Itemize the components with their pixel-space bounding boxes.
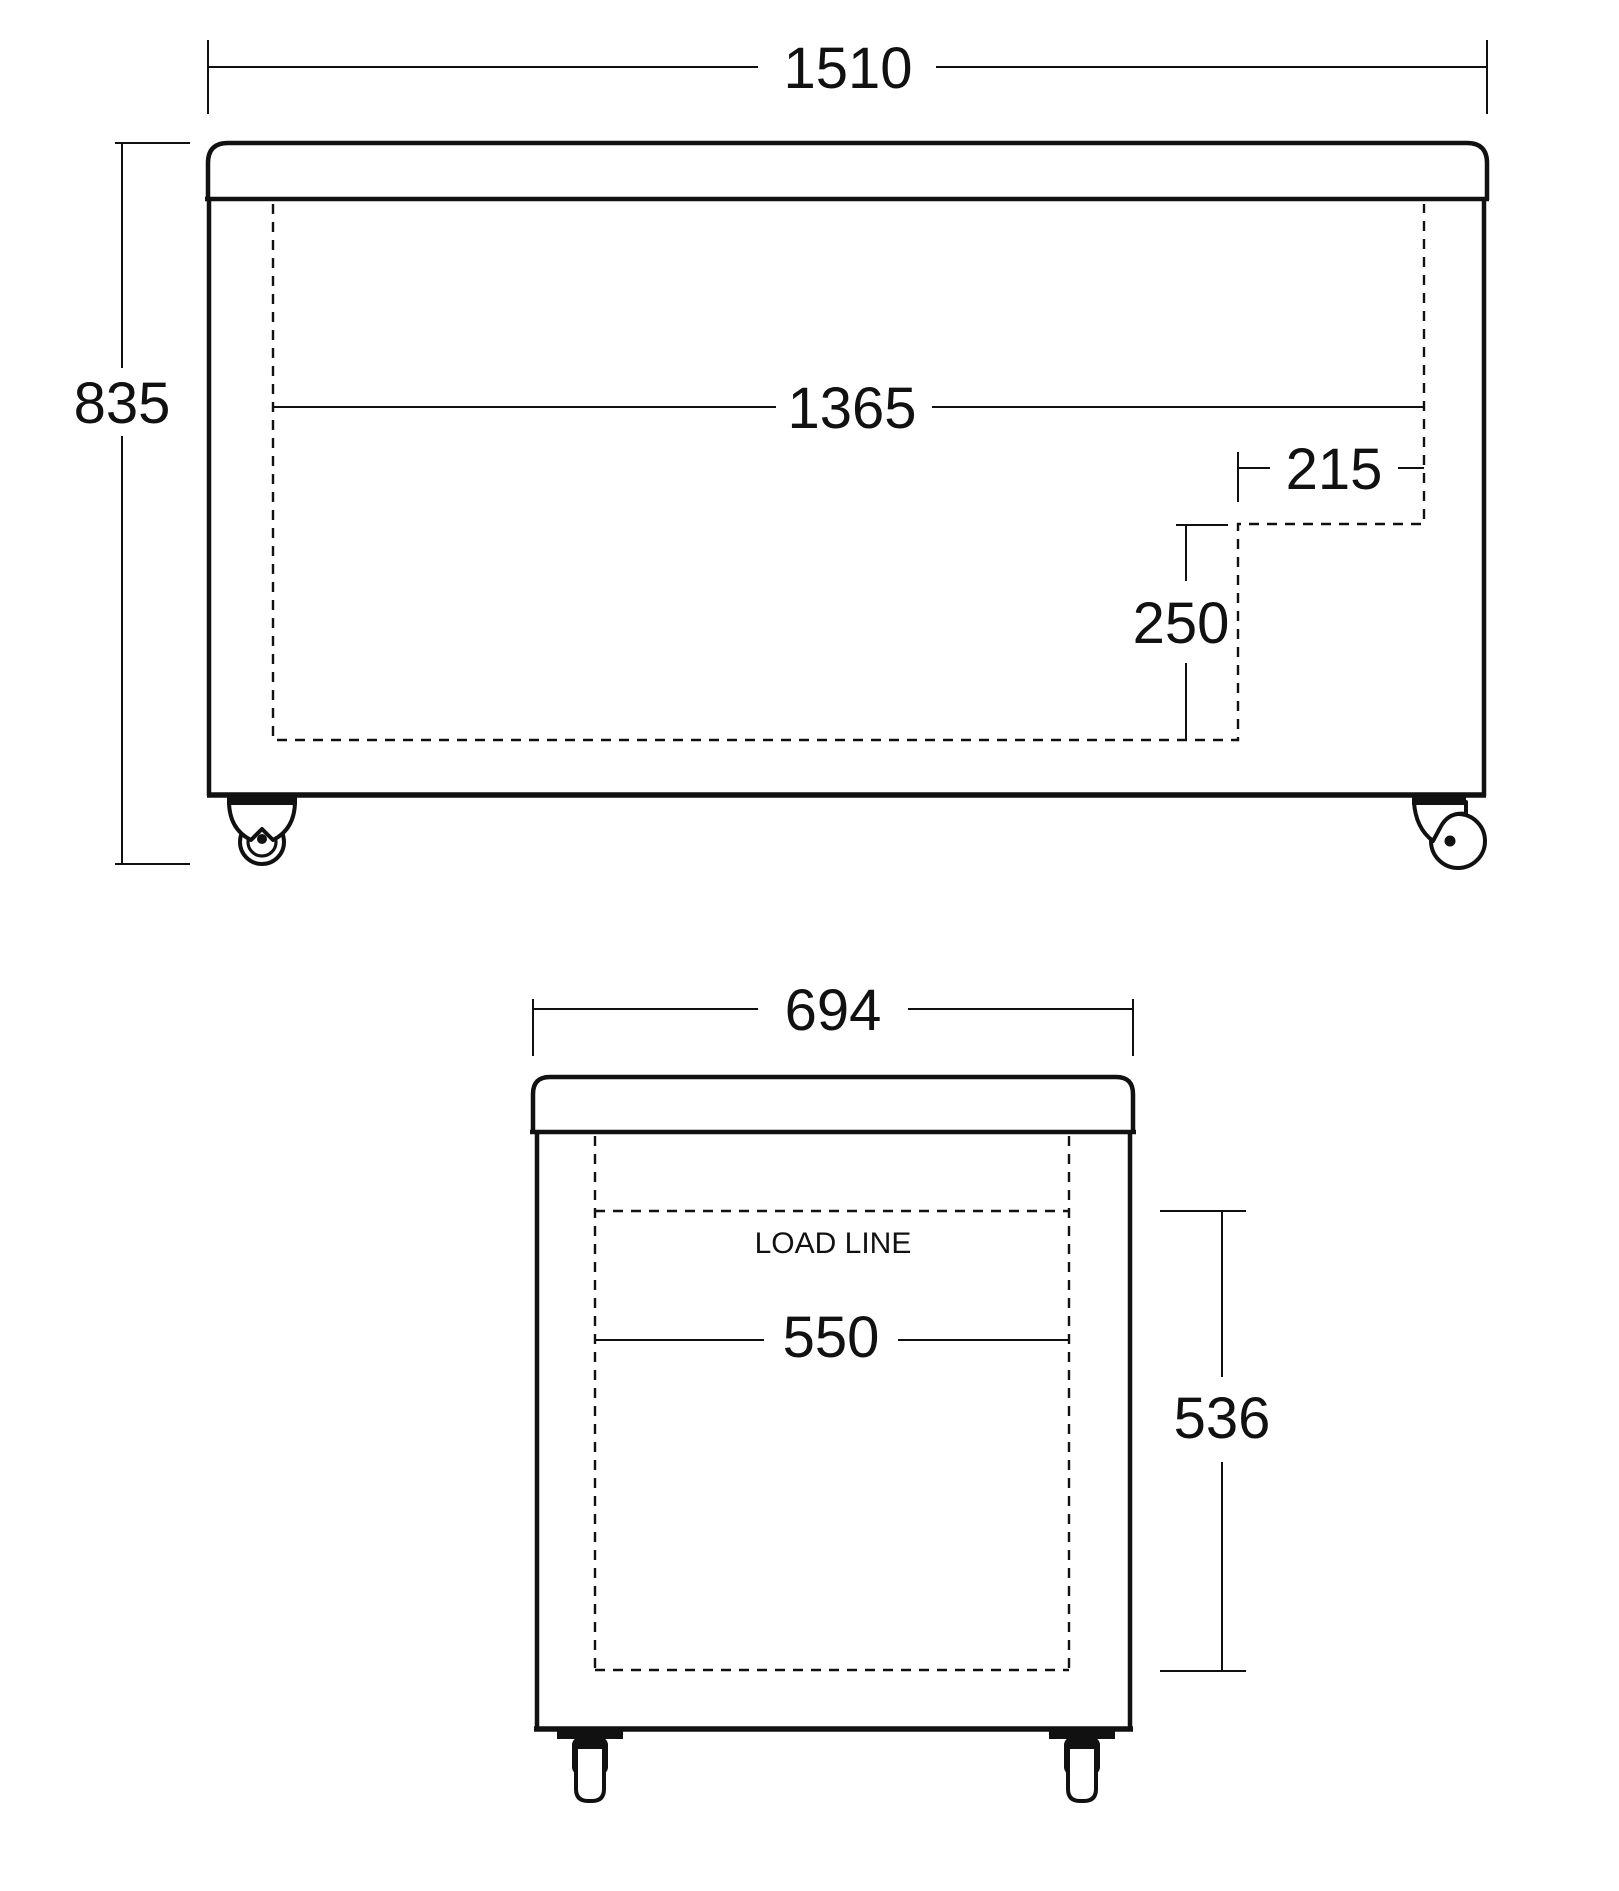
step-width-label: 215 — [1286, 437, 1383, 502]
caster-end-right — [1049, 1731, 1115, 1801]
step-height-label: 250 — [1133, 591, 1230, 656]
dim-interior-height: 536 — [1160, 1211, 1270, 1671]
overall-width-label: 1510 — [783, 36, 912, 101]
caster-end-left — [557, 1731, 623, 1801]
freezer-lid — [205, 143, 1489, 200]
caster-fork — [1414, 802, 1466, 841]
load-line-label: LOAD LINE — [755, 1227, 912, 1260]
mounting-plate — [1412, 796, 1466, 805]
interior-width-label: 1365 — [787, 376, 916, 441]
lid-outline — [208, 143, 1487, 200]
overall-height-label: 835 — [74, 371, 171, 436]
overall-width-label: 694 — [785, 978, 882, 1043]
dim-step-height: 250 — [1133, 525, 1230, 740]
interior-height-label: 536 — [1174, 1386, 1271, 1451]
interior-dashed-outline — [273, 204, 1424, 740]
end-view: 694 LOAD LINE 550 — [530, 978, 1270, 1801]
mounting-plate — [227, 797, 297, 805]
dim-overall-height: 835 — [74, 143, 190, 864]
dim-interior-width: 1365 — [273, 376, 1423, 441]
lid-outline — [533, 1077, 1133, 1133]
interior-dashed-outline: LOAD LINE — [595, 1136, 1069, 1670]
interior-width-label: 550 — [783, 1305, 880, 1370]
dim-step-width: 215 — [1238, 437, 1424, 502]
dim-overall-width: 1510 — [208, 36, 1487, 114]
wheel — [1068, 1747, 1096, 1801]
caster-front-left — [227, 797, 297, 864]
axle-hub-dot — [257, 834, 267, 844]
dim-overall-width: 694 — [533, 978, 1133, 1056]
axle-hub-dot — [1445, 836, 1456, 847]
freezer-body — [534, 1133, 1133, 1730]
dim-interior-width: 550 — [595, 1305, 1069, 1370]
dimension-drawing-page: 1510 835 1365 — [0, 0, 1619, 1891]
caster-front-right — [1412, 796, 1485, 868]
technical-drawing-canvas: 1510 835 1365 — [0, 0, 1619, 1891]
front-view: 1510 835 1365 — [74, 36, 1489, 868]
wheel — [576, 1747, 604, 1801]
freezer-lid — [530, 1077, 1136, 1133]
